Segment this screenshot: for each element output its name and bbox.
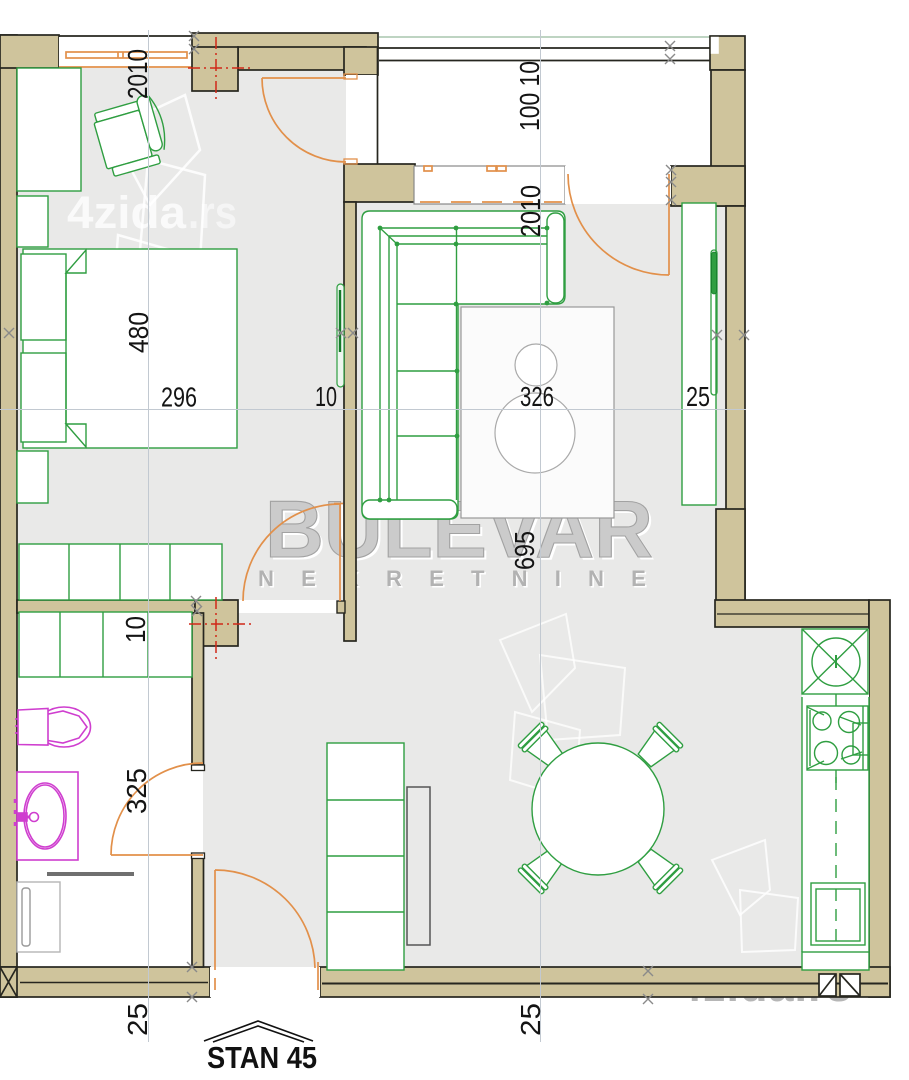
svg-text:100 10: 100 10 xyxy=(514,61,545,131)
svg-text:326: 326 xyxy=(520,381,554,412)
svg-text:NEKRETNINE: NEKRETNINE xyxy=(258,566,673,591)
svg-text:695: 695 xyxy=(509,531,540,570)
svg-text:296: 296 xyxy=(161,382,197,413)
svg-text:25: 25 xyxy=(122,1003,153,1036)
svg-text:2010: 2010 xyxy=(122,49,153,99)
svg-text:25: 25 xyxy=(686,381,710,412)
svg-text:STAN 45: STAN 45 xyxy=(207,1040,317,1075)
svg-text:480: 480 xyxy=(123,312,154,353)
svg-text:4zida: 4zida xyxy=(67,187,187,238)
svg-text:10: 10 xyxy=(120,616,151,643)
svg-text:2010: 2010 xyxy=(515,185,546,237)
svg-text:.rs: .rs xyxy=(188,187,237,238)
svg-text:10: 10 xyxy=(315,381,337,412)
svg-text:25: 25 xyxy=(515,1003,546,1036)
svg-text:325: 325 xyxy=(121,768,152,814)
